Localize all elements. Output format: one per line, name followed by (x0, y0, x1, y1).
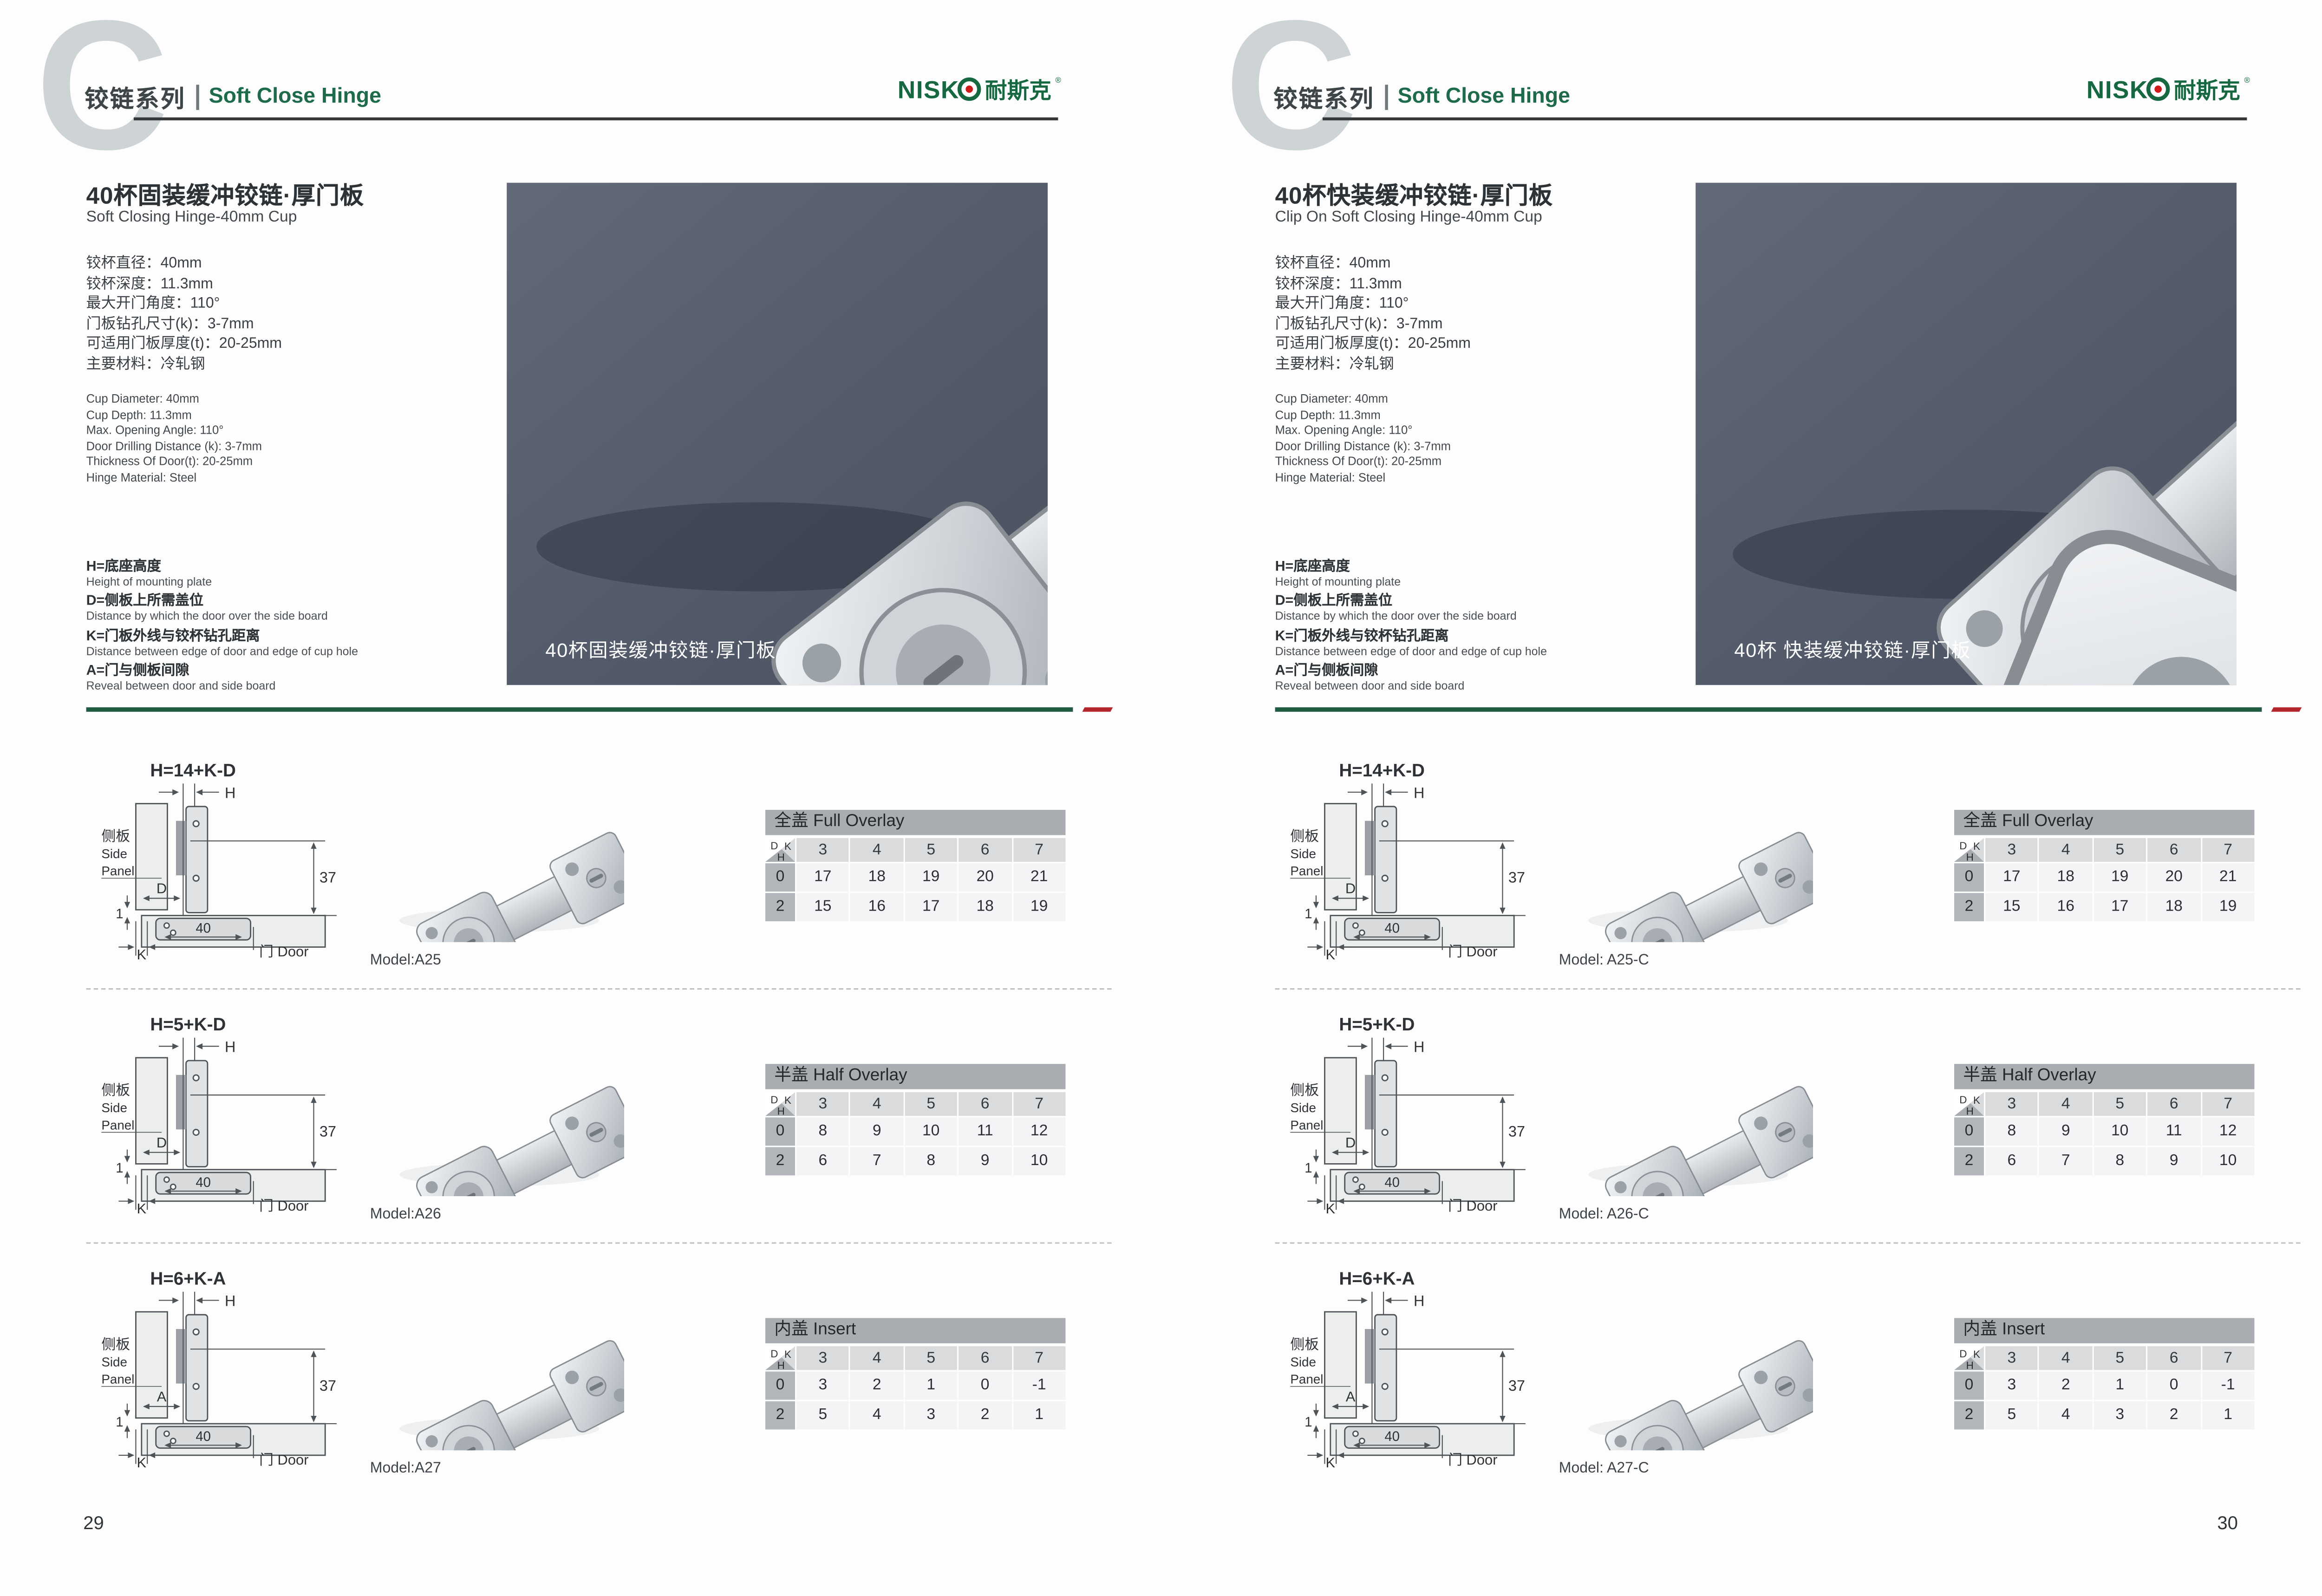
spec-line: Cup Diameter: 40mm (86, 392, 262, 408)
table-cell: 19 (905, 863, 957, 892)
h-row-header: 0 (765, 863, 795, 892)
table-title: 内盖 Insert (765, 1318, 1065, 1343)
model-label: Model:A26 (370, 1206, 441, 1223)
definition-cn: K=门板外线与铰杯钻孔距离 (1275, 628, 1721, 644)
k-col-header: 5 (2094, 1346, 2146, 1370)
logo-latin: NISK (898, 77, 959, 104)
definition-cn: D=侧板上所需盖位 (1275, 593, 1721, 609)
table-cell: 2 (2148, 1401, 2200, 1430)
product-photo: 40杯 快装缓冲铰链·厚门板 (1696, 183, 2237, 685)
table-cell: 4 (851, 1401, 903, 1430)
dimension-definitions: H=底座高度Height of mounting plateD=侧板上所需盖位D… (1275, 553, 1721, 692)
k-col-header: 7 (2202, 838, 2254, 862)
hinge-photo-art (507, 183, 1048, 685)
dim-k-label: K (1326, 1454, 1336, 1470)
door-label: 门 Door (259, 1452, 308, 1468)
table-cell: -1 (2202, 1372, 2254, 1400)
dim-37-label: 37 (320, 869, 336, 886)
definition-en: Reveal between door and side board (1275, 679, 1721, 692)
corner-k: K (1973, 840, 1980, 852)
table-cell: 21 (1013, 863, 1065, 892)
table-grid: D K H 3 4 5 6 7 0 3 2 1 0 -1 2 5 4 (1954, 1346, 2254, 1429)
table-cell: 3 (1985, 1372, 2038, 1400)
side-panel-label-en1: Side (1290, 847, 1316, 861)
product-section: H=6+K-A H 侧板 Side Panel A 1 40 37 K 门 Do… (1189, 1251, 2322, 1505)
model-label: Model:A25 (370, 952, 441, 969)
page-number: 29 (83, 1513, 104, 1534)
corner-d: D (1959, 840, 1967, 852)
corner-d: D (1959, 1348, 1967, 1360)
dim-overlay-label: D (157, 880, 167, 897)
definition-en: Height of mounting plate (1275, 574, 1721, 588)
k-col-header: 7 (1013, 1092, 1065, 1116)
dim-37-label: 37 (320, 1123, 336, 1140)
definition-cn: A=门与侧板间隙 (86, 663, 532, 679)
section-divider (1275, 988, 2301, 990)
table-cell: 7 (851, 1147, 903, 1175)
side-panel-label-en1: Side (1290, 1355, 1316, 1369)
dim-h-label: H (225, 1293, 235, 1309)
k-col-header: 6 (959, 838, 1011, 862)
spec-line: 门板钻孔尺寸(k)：3-7mm (86, 315, 282, 335)
installation-diagram: H=14+K-D H 侧板 Side Panel D 1 40 37 K 门 D… (98, 755, 372, 962)
series-title-cn: 铰链系列 (1273, 79, 1375, 115)
table-title: 内盖 Insert (1954, 1318, 2254, 1343)
product-title-en: Soft Closing Hinge-40mm Cup (86, 208, 297, 226)
dim-k-label: K (1326, 946, 1336, 962)
spec-line: 铰杯深度：11.3mm (1275, 274, 1471, 295)
dim-40-label: 40 (1384, 1175, 1400, 1190)
h-row-header: 2 (765, 1401, 795, 1430)
model-label: Model: A27-C (1559, 1461, 1649, 1477)
table-cell: 2 (2040, 1372, 2092, 1400)
definition-cn: H=底座高度 (1275, 558, 1721, 574)
height-formula: H=14+K-D (1339, 761, 1425, 781)
spec-line: 最大开门角度：110° (86, 294, 282, 315)
dim-1-label: 1 (116, 1160, 123, 1176)
corner-k: K (1973, 1094, 1980, 1106)
table-title: 半盖 Half Overlay (765, 1064, 1065, 1089)
dim-1-label: 1 (116, 906, 123, 922)
spec-line: Max. Opening Angle: 110° (86, 424, 262, 440)
page-number: 30 (2217, 1513, 2238, 1534)
side-panel-label-en1: Side (1290, 1101, 1316, 1115)
table-cell: 18 (959, 893, 1011, 921)
definition-cn: D=侧板上所需盖位 (86, 593, 532, 609)
series-header: 铰链系列 Soft Close Hinge (1273, 79, 1570, 115)
page-29: C 铰链系列 Soft Close Hinge NISK 耐斯克 ® 40杯固装… (0, 0, 1168, 1596)
table-cell: 12 (1013, 1117, 1065, 1146)
spec-line: 门板钻孔尺寸(k)：3-7mm (1275, 315, 1471, 335)
corner-h: H (777, 1360, 785, 1370)
table-cell: 2 (959, 1401, 1011, 1430)
specs-cn: 铰杯直径：40mm铰杯深度：11.3mm最大开门角度：110°门板钻孔尺寸(k)… (86, 254, 282, 375)
definition-cn: H=底座高度 (86, 558, 532, 574)
k-col-header: 3 (796, 1092, 849, 1116)
table-title: 半盖 Half Overlay (1954, 1064, 2254, 1089)
dim-overlay-label: A (157, 1388, 167, 1405)
series-title-cn: 铰链系列 (85, 79, 186, 115)
section-divider (86, 988, 1112, 990)
definition-en: Distance between edge of door and edge o… (86, 644, 532, 658)
section-divider (1275, 1242, 2301, 1244)
k-col-header: 7 (2202, 1346, 2254, 1370)
logo-cn: 耐斯克 (2174, 79, 2240, 104)
specs-en: Cup Diameter: 40mmCup Depth: 11.3mmMax. … (1275, 392, 1451, 487)
definition-en: Height of mounting plate (86, 574, 532, 588)
sections: H=14+K-D H 侧板 Side Panel D 1 40 37 K 门 D… (0, 743, 1168, 1505)
dim-overlay-label: D (1345, 880, 1356, 897)
h-row-header: 2 (1954, 1147, 1984, 1175)
table-cell: 10 (1013, 1147, 1065, 1175)
table-grid: D K H 3 4 5 6 7 0 8 9 10 11 12 2 6 7 (1954, 1092, 2254, 1175)
registered-mark: ® (2244, 76, 2250, 85)
table-cell: 11 (959, 1117, 1011, 1146)
table-corner-cell: D K H (765, 838, 795, 862)
k-col-header: 7 (1013, 1346, 1065, 1370)
spec-line: Cup Depth: 11.3mm (86, 408, 262, 424)
table-cell: 9 (2148, 1147, 2200, 1175)
corner-k: K (1973, 1348, 1980, 1360)
h-row-header: 2 (765, 1147, 795, 1175)
k-col-header: 7 (1013, 838, 1065, 862)
definition-en: Distance by which the door over the side… (1275, 609, 1721, 623)
k-col-header: 4 (2040, 1092, 2092, 1116)
table-cell: 19 (2202, 893, 2254, 921)
door-label: 门 Door (1448, 1198, 1497, 1214)
table-cell: 8 (2094, 1147, 2146, 1175)
dim-overlay-label: D (1345, 1134, 1356, 1151)
dimension-definitions: H=底座高度Height of mounting plateD=侧板上所需盖位D… (86, 553, 532, 692)
corner-h: H (1966, 851, 1974, 862)
definition-en: Distance by which the door over the side… (86, 609, 532, 623)
model-label: Model: A26-C (1559, 1206, 1649, 1223)
k-col-header: 5 (905, 1346, 957, 1370)
dim-40-label: 40 (1384, 921, 1400, 936)
table-cell: 21 (2202, 863, 2254, 892)
product-section: H=6+K-A H 侧板 Side Panel A 1 40 37 K 门 Do… (0, 1251, 1168, 1505)
product-section: H=14+K-D H 侧板 Side Panel D 1 40 37 K 门 D… (0, 743, 1168, 997)
corner-h: H (1966, 1106, 1974, 1116)
spec-table: 半盖 Half Overlay D K H 3 4 5 6 7 0 (1954, 1064, 2254, 1175)
k-col-header: 4 (851, 1092, 903, 1116)
table-cell: 15 (796, 893, 849, 921)
spec-line: 铰杯直径：40mm (1275, 254, 1471, 274)
spec-line: Door Drilling Distance (k): 3-7mm (86, 440, 262, 456)
dim-40-label: 40 (196, 921, 211, 936)
k-col-header: 7 (2202, 1092, 2254, 1116)
series-title-en: Soft Close Hinge (1398, 85, 1570, 108)
nisko-logo: NISK 耐斯克 ® (2087, 68, 2256, 110)
side-panel-label-en1: Side (101, 1355, 127, 1369)
hinge-product-image (1563, 764, 1813, 942)
table-grid: D K H 3 4 5 6 7 0 8 9 10 11 12 2 6 7 (765, 1092, 1065, 1175)
h-row-header: 0 (1954, 1117, 1984, 1146)
dim-overlay-label: D (157, 1134, 167, 1151)
dim-k-label: K (137, 946, 147, 962)
side-panel-label-en2: Panel (1290, 864, 1323, 878)
spec-line: Hinge Material: Steel (86, 471, 262, 487)
table-cell: 1 (2202, 1401, 2254, 1430)
spec-line: 可适用门板厚度(t)：20-25mm (86, 335, 282, 355)
divider (196, 84, 198, 109)
dim-1-label: 1 (1304, 1160, 1312, 1176)
table-cell: 20 (2148, 863, 2200, 892)
header-rule (134, 117, 1058, 120)
dim-40-label: 40 (196, 1175, 211, 1190)
table-cell: 5 (796, 1401, 849, 1430)
k-col-header: 5 (2094, 1092, 2146, 1116)
k-col-header: 5 (905, 838, 957, 862)
hinge-photo-art (1696, 183, 2237, 685)
spec-line: 铰杯直径：40mm (86, 254, 282, 274)
k-col-header: 3 (1985, 1346, 2038, 1370)
table-grid: D K H 3 4 5 6 7 0 3 2 1 0 -1 2 5 4 (765, 1346, 1065, 1429)
k-col-header: 6 (2148, 1346, 2200, 1370)
table-cell: 9 (2040, 1117, 2092, 1146)
dim-h-label: H (225, 1038, 235, 1055)
accent-separator (1275, 707, 2301, 712)
spec-line: 铰杯深度：11.3mm (86, 274, 282, 295)
k-col-header: 4 (2040, 1346, 2092, 1370)
definition-cn: K=门板外线与铰杯钻孔距离 (86, 628, 532, 644)
table-corner-cell: D K H (765, 1346, 795, 1370)
k-col-header: 3 (1985, 1092, 2038, 1116)
spec-line: 最大开门角度：110° (1275, 294, 1471, 315)
photo-caption: 40杯固装缓冲铰链·厚门板 (545, 634, 776, 663)
table-cell: 18 (851, 863, 903, 892)
dim-h-label: H (1414, 784, 1424, 801)
spec-table: 内盖 Insert D K H 3 4 5 6 7 0 3 (1954, 1318, 2254, 1429)
hinge-product-image (374, 1272, 624, 1450)
side-panel-label-en1: Side (101, 1101, 127, 1115)
h-row-header: 0 (765, 1117, 795, 1146)
k-col-header: 3 (796, 838, 849, 862)
height-formula: H=6+K-A (150, 1269, 226, 1289)
side-panel-label-cn: 侧板 (101, 828, 130, 844)
definition-en: Reveal between door and side board (86, 679, 532, 692)
product-section: H=5+K-D H 侧板 Side Panel D 1 40 37 K 门 Do… (0, 997, 1168, 1251)
model-label: Model:A27 (370, 1461, 441, 1477)
h-row-header: 0 (1954, 1372, 1984, 1400)
table-cell: 19 (1013, 893, 1065, 921)
h-row-header: 0 (765, 1372, 795, 1400)
table-cell: 15 (1985, 893, 2038, 921)
corner-h: H (1966, 1360, 1974, 1370)
table-cell: 17 (905, 893, 957, 921)
k-col-header: 6 (959, 1346, 1011, 1370)
logo-latin: NISK (2087, 77, 2148, 104)
corner-d: D (770, 1348, 778, 1360)
spec-line: Max. Opening Angle: 110° (1275, 424, 1451, 440)
table-cell: 1 (2094, 1372, 2146, 1400)
product-title-cn: 40杯快装缓冲铰链·厚门板 (1275, 176, 1553, 211)
k-col-header: 3 (796, 1346, 849, 1370)
spec-table: 全盖 Full Overlay D K H 3 4 5 6 7 0 (1954, 810, 2254, 921)
logo-cn: 耐斯克 (985, 79, 1051, 104)
table-cell: 18 (2148, 893, 2200, 921)
dim-h-label: H (1414, 1293, 1424, 1309)
registered-mark: ® (1055, 76, 1061, 85)
corner-k: K (784, 840, 791, 852)
installation-diagram: H=14+K-D H 侧板 Side Panel D 1 40 37 K 门 D… (1287, 755, 1560, 962)
table-cell: 10 (2202, 1147, 2254, 1175)
table-cell: 12 (2202, 1117, 2254, 1146)
dim-1-label: 1 (1304, 906, 1312, 922)
accent-separator (86, 707, 1112, 712)
table-corner-cell: D K H (1954, 1092, 1984, 1116)
side-panel-label-en2: Panel (1290, 1372, 1323, 1386)
height-formula: H=5+K-D (150, 1015, 226, 1035)
table-cell: 3 (905, 1401, 957, 1430)
catalog-spread: C 铰链系列 Soft Close Hinge NISK 耐斯克 ® 40杯固装… (0, 0, 2322, 1596)
dim-37-label: 37 (320, 1377, 336, 1394)
dim-k-label: K (137, 1454, 147, 1470)
table-cell: 1 (905, 1372, 957, 1400)
sections: H=14+K-D H 侧板 Side Panel D 1 40 37 K 门 D… (1189, 743, 2322, 1505)
table-cell: 8 (1985, 1117, 2038, 1146)
model-label: Model: A25-C (1559, 952, 1649, 969)
table-cell: 9 (851, 1117, 903, 1146)
k-col-header: 4 (2040, 838, 2092, 862)
table-cell: 4 (2040, 1401, 2092, 1430)
series-header: 铰链系列 Soft Close Hinge (85, 79, 381, 115)
table-cell: 17 (1985, 863, 2038, 892)
corner-d: D (770, 840, 778, 852)
hinge-product-image (1563, 1272, 1813, 1450)
table-cell: 8 (905, 1147, 957, 1175)
h-row-header: 2 (765, 893, 795, 921)
corner-h: H (777, 1106, 785, 1116)
product-section: H=14+K-D H 侧板 Side Panel D 1 40 37 K 门 D… (1189, 743, 2322, 997)
spec-line: 主要材料：冷轧钢 (86, 355, 282, 376)
height-formula: H=5+K-D (1339, 1015, 1415, 1035)
spec-table: 全盖 Full Overlay D K H 3 4 5 6 7 0 (765, 810, 1065, 921)
table-cell: 8 (796, 1117, 849, 1146)
h-row-header: 0 (1954, 863, 1984, 892)
divider (1385, 84, 1387, 109)
side-panel-label-en2: Panel (101, 864, 134, 878)
table-cell: 3 (796, 1372, 849, 1400)
dim-40-label: 40 (196, 1429, 211, 1444)
side-panel-label-cn: 侧板 (1290, 1336, 1319, 1352)
spec-line: Door Drilling Distance (k): 3-7mm (1275, 440, 1451, 456)
dim-h-label: H (225, 784, 235, 801)
table-cell: 9 (959, 1147, 1011, 1175)
table-cell: 0 (959, 1372, 1011, 1400)
table-cell: 7 (2040, 1147, 2092, 1175)
height-formula: H=6+K-A (1339, 1269, 1415, 1289)
product-section: H=5+K-D H 侧板 Side Panel D 1 40 37 K 门 Do… (1189, 997, 2322, 1251)
spec-line: 可适用门板厚度(t)：20-25mm (1275, 335, 1471, 355)
dim-k-label: K (137, 1200, 147, 1216)
dim-37-label: 37 (1508, 1123, 1525, 1140)
k-col-header: 4 (851, 838, 903, 862)
table-cell: 0 (2148, 1372, 2200, 1400)
hinge-product-image (1563, 1018, 1813, 1196)
corner-d: D (1959, 1094, 1967, 1106)
corner-k: K (784, 1348, 791, 1360)
k-col-header: 4 (851, 1346, 903, 1370)
dim-h-label: H (1414, 1038, 1424, 1055)
table-cell: 17 (2094, 893, 2146, 921)
side-panel-label-cn: 侧板 (1290, 1082, 1319, 1098)
table-cell: 10 (2094, 1117, 2146, 1146)
dim-37-label: 37 (1508, 1377, 1525, 1394)
installation-diagram: H=5+K-D H 侧板 Side Panel D 1 40 37 K 门 Do… (1287, 1009, 1560, 1216)
specs-en: Cup Diameter: 40mmCup Depth: 11.3mmMax. … (86, 392, 262, 487)
k-col-header: 5 (905, 1092, 957, 1116)
page-30: C 铰链系列 Soft Close Hinge NISK 耐斯克 ® 40杯快装… (1168, 0, 2322, 1596)
table-cell: 16 (851, 893, 903, 921)
table-cell: 3 (2094, 1401, 2146, 1430)
table-grid: D K H 3 4 5 6 7 0 17 18 19 20 21 2 15 16 (765, 838, 1065, 921)
table-title: 全盖 Full Overlay (765, 810, 1065, 835)
product-title-en: Clip On Soft Closing Hinge-40mm Cup (1275, 208, 1542, 226)
table-corner-cell: D K H (765, 1092, 795, 1116)
k-col-header: 5 (2094, 838, 2146, 862)
k-col-header: 6 (2148, 1092, 2200, 1116)
spec-line: Cup Diameter: 40mm (1275, 392, 1451, 408)
section-divider (86, 1242, 1112, 1244)
k-col-header: 6 (2148, 838, 2200, 862)
installation-diagram: H=6+K-A H 侧板 Side Panel A 1 40 37 K 门 Do… (1287, 1263, 1560, 1470)
table-cell: 18 (2040, 863, 2092, 892)
spec-line: Thickness Of Door(t): 20-25mm (1275, 455, 1451, 471)
side-panel-label-en2: Panel (101, 1372, 134, 1386)
table-grid: D K H 3 4 5 6 7 0 17 18 19 20 21 2 15 16 (1954, 838, 2254, 921)
installation-diagram: H=6+K-A H 侧板 Side Panel A 1 40 37 K 门 Do… (98, 1263, 372, 1470)
corner-h: H (777, 851, 785, 862)
side-panel-label-cn: 侧板 (1290, 828, 1319, 844)
h-row-header: 2 (1954, 893, 1984, 921)
nisko-o-icon (959, 79, 979, 99)
table-cell: 19 (2094, 863, 2146, 892)
k-col-header: 6 (959, 1092, 1011, 1116)
definition-cn: A=门与侧板间隙 (1275, 663, 1721, 679)
header-rule (1323, 117, 2247, 120)
table-cell: 11 (2148, 1117, 2200, 1146)
door-label: 门 Door (1448, 1452, 1497, 1468)
spec-table: 半盖 Half Overlay D K H 3 4 5 6 7 0 (765, 1064, 1065, 1175)
spec-line: Thickness Of Door(t): 20-25mm (86, 455, 262, 471)
dim-37-label: 37 (1508, 869, 1525, 886)
product-title-cn: 40杯固装缓冲铰链·厚门板 (86, 176, 365, 211)
installation-diagram: H=5+K-D H 侧板 Side Panel D 1 40 37 K 门 Do… (98, 1009, 372, 1216)
table-corner-cell: D K H (1954, 838, 1984, 862)
table-corner-cell: D K H (1954, 1346, 1984, 1370)
side-panel-label-en1: Side (101, 847, 127, 861)
spec-line: Hinge Material: Steel (1275, 471, 1451, 487)
hinge-product-image (374, 764, 624, 942)
table-cell: 17 (796, 863, 849, 892)
door-label: 门 Door (259, 944, 308, 960)
table-cell: 10 (905, 1117, 957, 1146)
specs-cn: 铰杯直径：40mm铰杯深度：11.3mm最大开门角度：110°门板钻孔尺寸(k)… (1275, 254, 1471, 375)
side-panel-label-cn: 侧板 (101, 1082, 130, 1098)
side-panel-label-en2: Panel (1290, 1118, 1323, 1132)
door-label: 门 Door (259, 1198, 308, 1214)
definition-en: Distance between edge of door and edge o… (1275, 644, 1721, 658)
door-label: 门 Door (1448, 944, 1497, 960)
hinge-product-image (374, 1018, 624, 1196)
spec-table: 内盖 Insert D K H 3 4 5 6 7 0 3 (765, 1318, 1065, 1429)
dim-overlay-label: A (1346, 1388, 1356, 1405)
height-formula: H=14+K-D (150, 761, 236, 781)
table-cell: 6 (796, 1147, 849, 1175)
table-cell: 20 (959, 863, 1011, 892)
spec-line: 主要材料：冷轧钢 (1275, 355, 1471, 376)
